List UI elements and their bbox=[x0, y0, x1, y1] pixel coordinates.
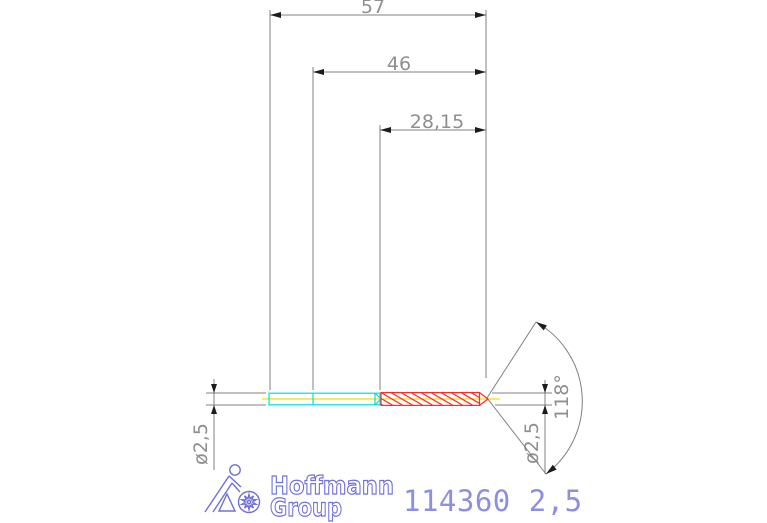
technical-drawing-page: 57 46 28,15 ø2,5 ø2,5 118 bbox=[0, 0, 767, 523]
dimension-flute-length: 28,15 bbox=[380, 111, 486, 133]
dimension-body-length: 46 bbox=[313, 53, 486, 75]
dimension-diameter-right: ø2,5 bbox=[492, 380, 552, 474]
dimension-point-angle-label: 118° bbox=[551, 374, 573, 420]
dimension-body-length-label: 46 bbox=[387, 53, 411, 75]
logo-wordmark: Hoffmann Group bbox=[270, 471, 394, 522]
dimension-diameter-right-label: ø2,5 bbox=[521, 422, 543, 464]
part-number: 114360 2,5 bbox=[403, 484, 583, 518]
dimension-flute-length-label: 28,15 bbox=[410, 111, 464, 133]
logo-wordmark-line2: Group bbox=[270, 493, 342, 522]
drill-technical-drawing: 57 46 28,15 ø2,5 ø2,5 118 bbox=[0, 0, 767, 523]
dimension-total-length-label: 57 bbox=[361, 0, 385, 18]
dimension-diameter-left: ø2,5 bbox=[190, 379, 266, 470]
hoffmann-group-logo: Hoffmann Group bbox=[205, 465, 394, 522]
dimension-total-length: 57 bbox=[270, 0, 486, 18]
extension-lines bbox=[270, 10, 486, 390]
dimension-diameter-left-label: ø2,5 bbox=[190, 423, 212, 465]
drill-bit bbox=[262, 392, 500, 406]
hoffmann-logo-icon bbox=[205, 465, 260, 513]
